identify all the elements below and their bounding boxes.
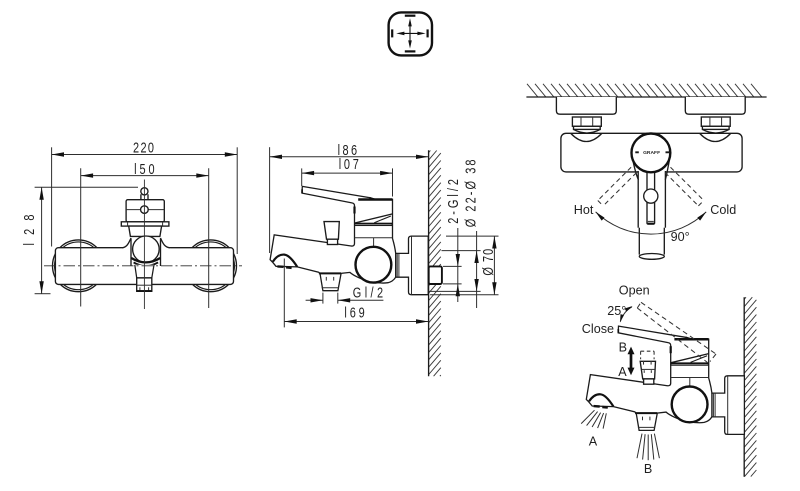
svg-text:Ø 22-Ø 38: Ø 22-Ø 38 bbox=[462, 159, 479, 227]
svg-text:B: B bbox=[619, 341, 627, 355]
svg-text:Hot: Hot bbox=[574, 203, 594, 217]
svg-text:Close: Close bbox=[582, 322, 614, 336]
svg-text:A: A bbox=[618, 365, 627, 379]
svg-text:GRAFF: GRAFF bbox=[643, 150, 660, 155]
svg-text:90°: 90° bbox=[671, 230, 690, 244]
svg-text:A: A bbox=[589, 434, 598, 448]
svg-text:220: 220 bbox=[133, 139, 154, 156]
svg-text:Ø 70: Ø 70 bbox=[479, 249, 496, 276]
svg-text:Open: Open bbox=[619, 283, 650, 297]
svg-text:B: B bbox=[644, 462, 652, 476]
svg-text:Cold: Cold bbox=[710, 203, 736, 217]
svg-text:25°: 25° bbox=[607, 304, 626, 318]
